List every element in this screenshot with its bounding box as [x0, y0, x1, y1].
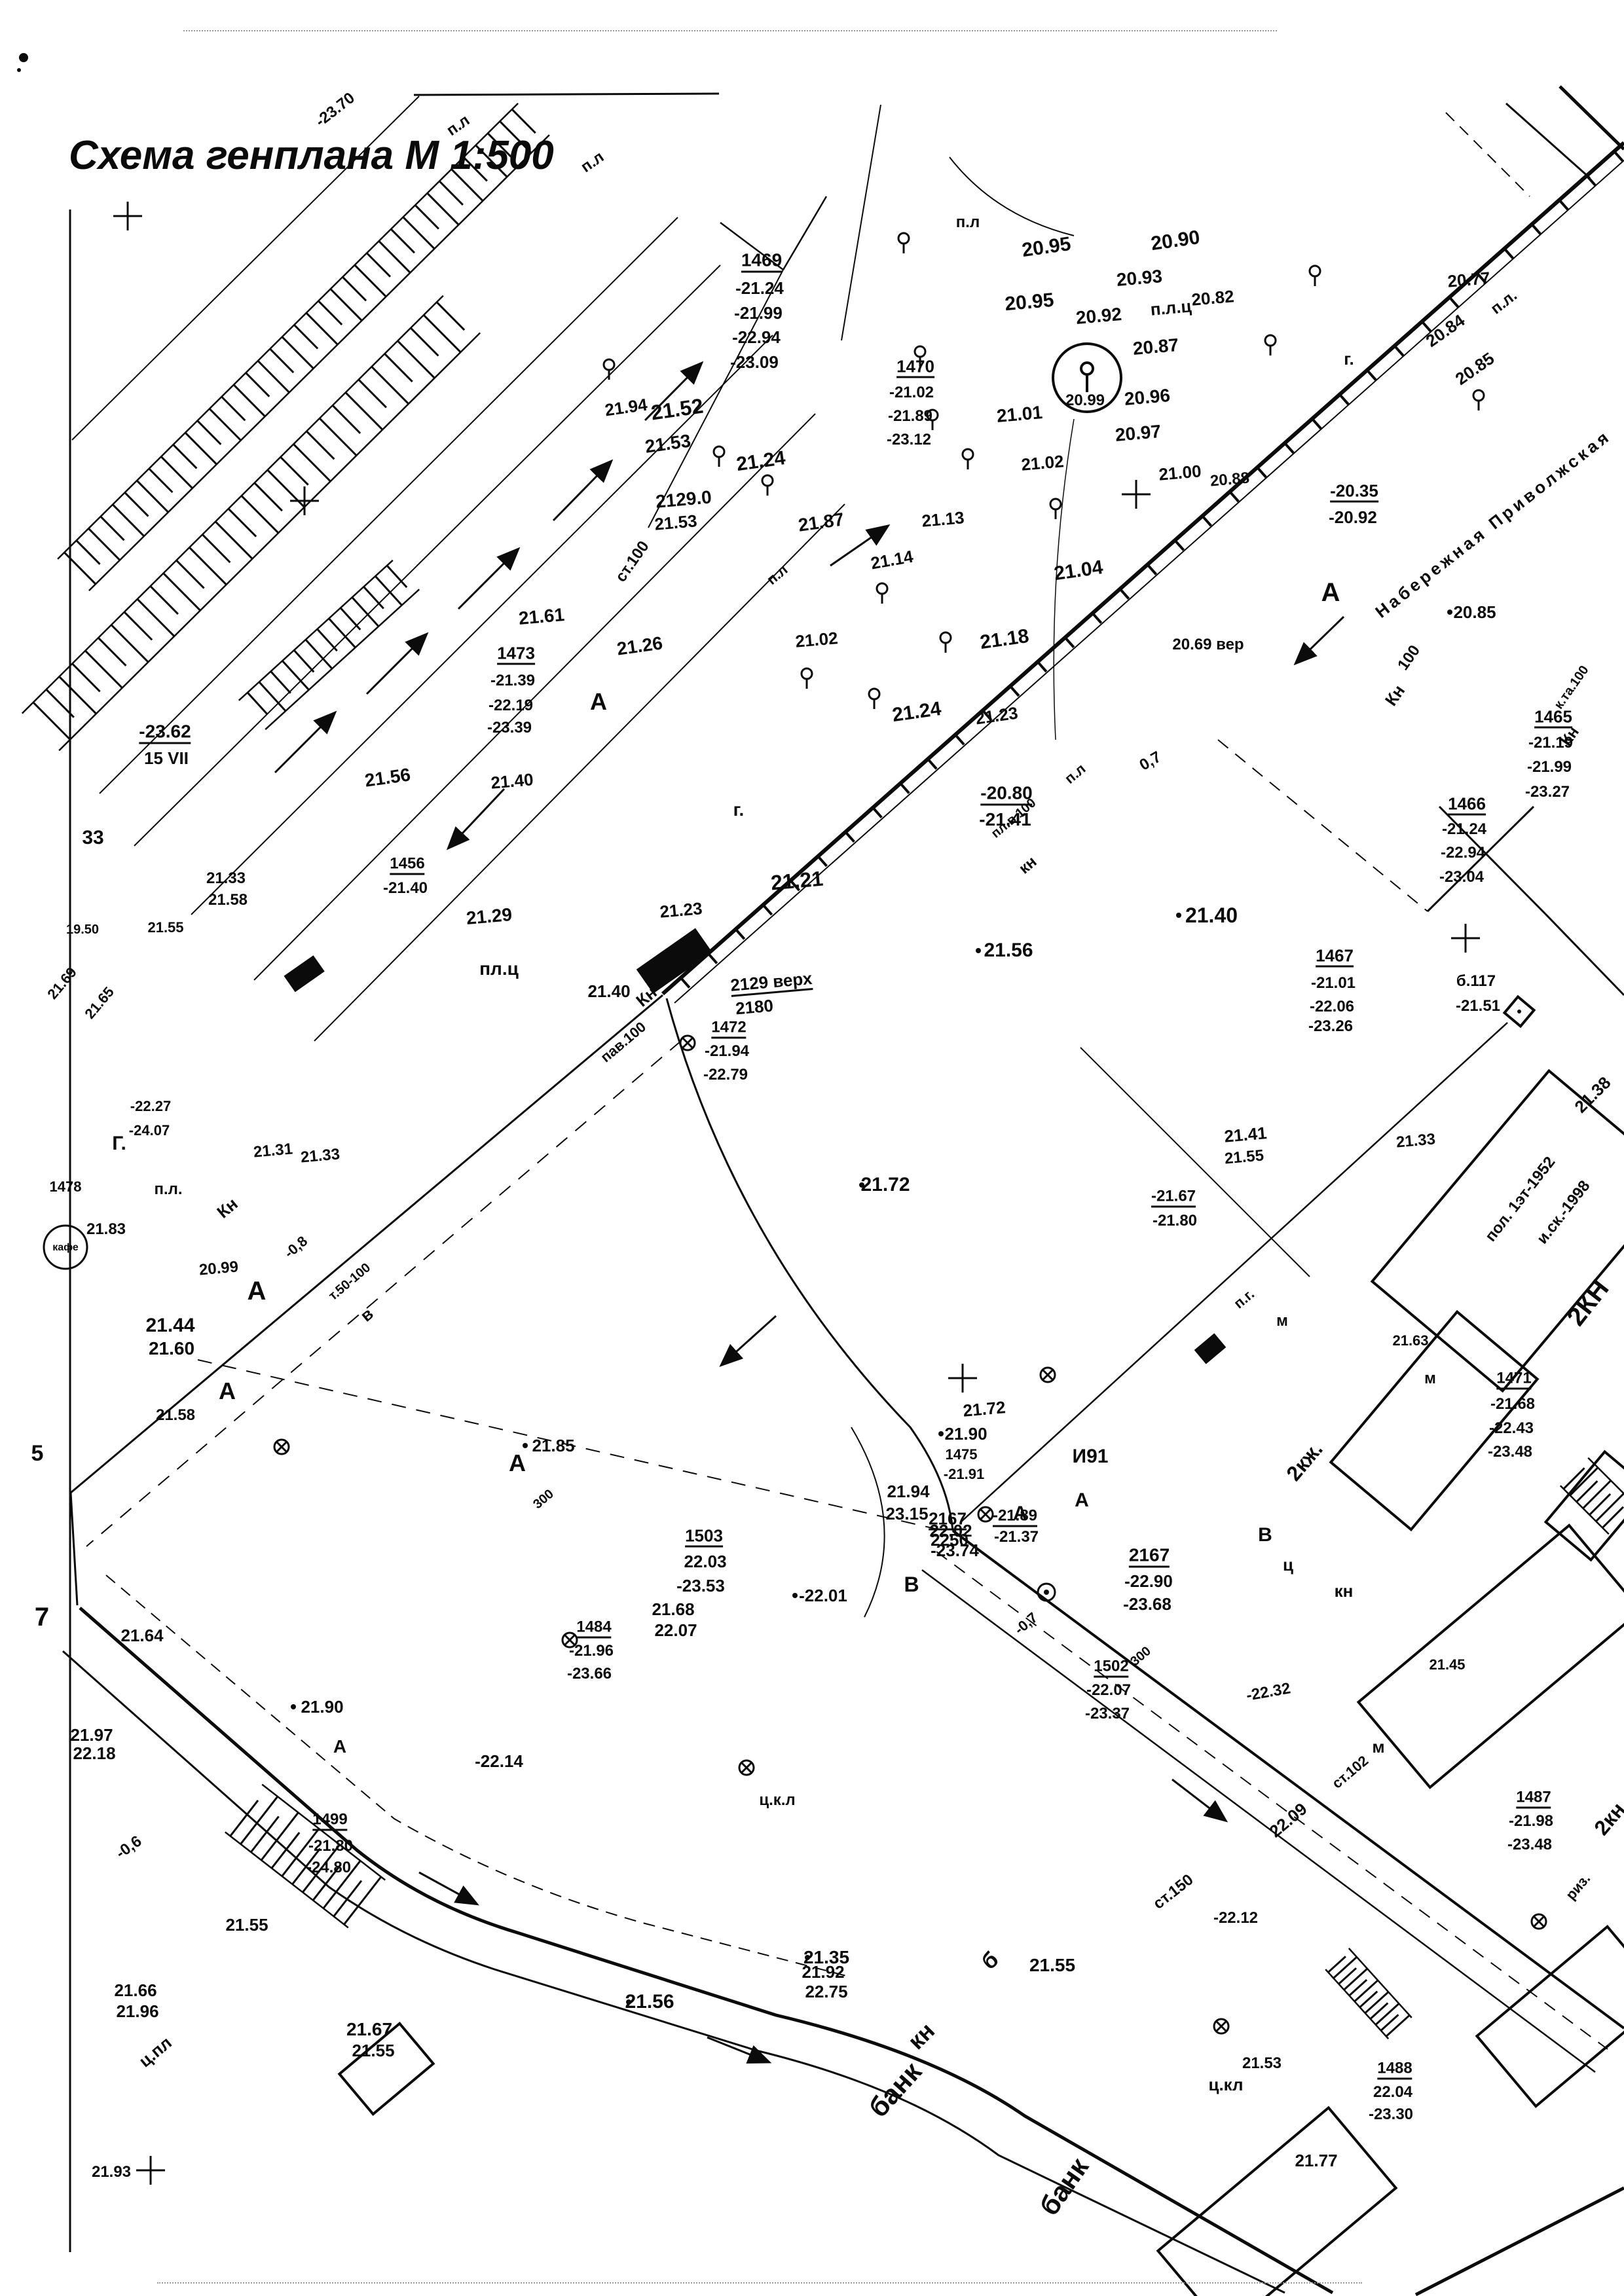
manhole-icon	[680, 1036, 695, 1050]
tree-icon	[877, 583, 887, 604]
dot-icon	[792, 1593, 798, 1598]
manhole-icon	[1532, 1914, 1546, 1929]
dot-icon	[976, 948, 981, 953]
dot-icon	[1176, 913, 1181, 918]
cross-icon	[113, 202, 142, 230]
cross-icon	[948, 1364, 977, 1393]
road-lines	[63, 995, 1624, 2295]
manhole-icon	[1214, 2019, 1228, 2033]
tree-icon	[1050, 499, 1061, 519]
building-filled	[284, 928, 1226, 1364]
tree-icon	[802, 668, 812, 689]
cross-icon	[1451, 924, 1480, 953]
cross-icon	[1122, 480, 1151, 509]
tree-icon	[604, 359, 614, 380]
dot-icon	[1447, 610, 1452, 615]
tree-icon	[714, 446, 724, 467]
bigtree-icon	[1053, 344, 1121, 412]
tree-icon	[915, 346, 925, 367]
scan-noise-top	[183, 30, 1277, 31]
tree-icon	[869, 689, 879, 709]
kiosk-icon	[44, 1226, 87, 1269]
dot-icon	[626, 1999, 631, 2005]
dot-icon	[859, 1182, 864, 1188]
building-outlines	[339, 1071, 1624, 2296]
dotring-icon	[1038, 1584, 1055, 1601]
embankment-hatching	[22, 103, 1624, 2039]
blot3-icon	[17, 68, 21, 72]
cross-icon	[290, 486, 319, 515]
tree-icon	[940, 632, 951, 653]
cross-icon	[136, 2156, 165, 2185]
tree-icon	[927, 410, 938, 430]
map-drawing	[0, 0, 1624, 2296]
manhole-icon	[1041, 1368, 1055, 1382]
tree-icon	[1473, 390, 1484, 410]
manhole-icon	[563, 1633, 577, 1647]
square-icon	[1504, 996, 1534, 1026]
dot-icon	[805, 1955, 810, 1960]
scan-noise-bottom	[157, 2282, 1362, 2284]
flow-arrows	[275, 365, 1344, 2061]
page-title: Схема генплана М 1:500	[69, 132, 554, 179]
manhole-icon	[739, 1760, 754, 1775]
dot-icon	[938, 1431, 944, 1436]
tree-icon	[1265, 335, 1276, 355]
dot-icon	[523, 1443, 528, 1448]
manhole-icon	[978, 1507, 993, 1522]
manhole-icon	[274, 1440, 289, 1454]
genplan-map: Схема генплана М 1:500 -23.70п.лп.лп.л20…	[0, 0, 1624, 2296]
tree-icon	[898, 233, 909, 253]
dot-icon	[291, 1704, 296, 1709]
tree-icon	[963, 449, 973, 469]
blot7-icon	[19, 53, 28, 62]
tree-icon	[1310, 266, 1320, 286]
utility-lines	[100, 105, 1624, 1277]
embankment-road-line	[663, 86, 1624, 1003]
tree-icon	[762, 475, 773, 496]
